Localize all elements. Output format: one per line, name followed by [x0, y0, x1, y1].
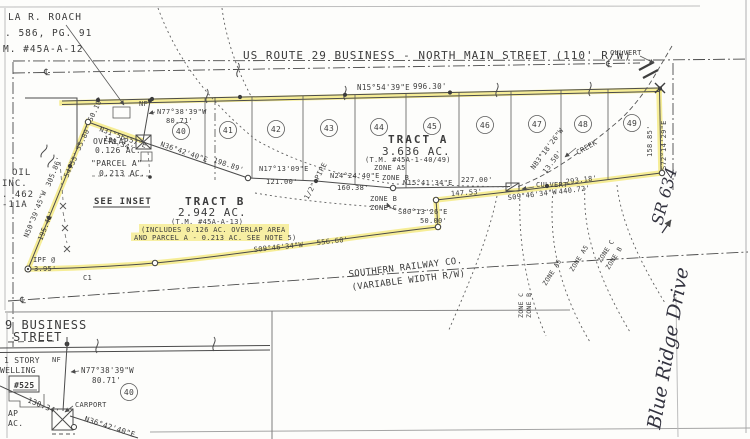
owner-tax-map: M. #45A-A-12 — [3, 44, 84, 55]
inset-story-label: 1 STORY — [4, 356, 40, 365]
ipf-distance: 3.95' — [34, 265, 57, 273]
lot-number: 42 — [271, 125, 281, 134]
parcel-a-name: "PARCEL A" — [91, 159, 142, 168]
jog-distance: 50.00' — [420, 217, 447, 225]
inset-street-line2: STREET — [13, 330, 62, 344]
front-distance: 80.71' — [166, 117, 193, 125]
owner-deed-ref: . 586, PG. 91 — [5, 28, 92, 39]
parcel-a-area: 0.213 AC. — [99, 169, 145, 178]
inset-dwelling-label: WELLING — [0, 366, 36, 375]
culvert-label-top: CULVERT — [610, 49, 642, 57]
centerline-symbol: ℄ — [605, 60, 612, 70]
rear2-bearing: N17°13'09"E — [259, 165, 309, 173]
rear2-distance: 121.00' — [266, 178, 298, 186]
inset-fragment-2: AC. — [8, 419, 23, 428]
inset-lot-number: 40 — [124, 388, 134, 397]
tract-a-tm: (T.M. #45A-1-40/49) — [365, 156, 451, 164]
road-distance: 996.30' — [413, 82, 447, 91]
street-name: US ROUTE 29 BUSINESS - NORTH MAIN STREET… — [243, 49, 632, 62]
road-bearing: N15°54'39"E — [357, 83, 410, 92]
lot-number: 49 — [627, 119, 637, 128]
east-bearing: S72°14'29"E — [660, 120, 668, 170]
nf-label: NF — [139, 100, 148, 108]
adjoiner-line2: INC. — [2, 179, 28, 189]
centerline-symbol: ℄ — [19, 296, 26, 306]
inset-carport-label: CARPORT — [75, 401, 107, 409]
lot-number: 48 — [578, 120, 588, 129]
inset-fragment-1: AP — [8, 409, 18, 418]
east-distance: 158.85' — [646, 125, 654, 157]
lot-number: 40 — [176, 127, 186, 136]
ipf-pin — [27, 268, 29, 270]
jog-bearing: S80°13'26"E — [398, 208, 448, 216]
lot-number: 45 — [427, 122, 437, 131]
centerline-symbol: ℄ — [43, 68, 50, 78]
see-inset-label: SEE INSET — [94, 197, 152, 207]
rear4-bearing: N15°41'34"E — [403, 179, 453, 187]
inset-house-number: #525 — [14, 381, 34, 390]
adjoiner-line4: -11A — [2, 200, 28, 210]
plat-drawing: 40 41 42 43 44 45 46 47 48 49 LA R. ROAC… — [0, 0, 750, 439]
scanned-survey-plat: 40 41 42 43 44 45 46 47 48 49 LA R. ROAC… — [0, 0, 750, 439]
rear4-distance: 227.00' — [461, 176, 493, 184]
zone-b-label: ZONE B — [370, 195, 397, 203]
ipf-label: IPF @ — [33, 256, 56, 264]
lot-number: 44 — [374, 123, 384, 132]
inset-front-bearing: N77°38'39"W — [81, 366, 134, 375]
tract-b-note1: (INCLUDES 0.126 AC. OVERLAP AREA — [141, 226, 286, 234]
lot-number: 47 — [532, 120, 542, 129]
curve-label: C1 — [83, 274, 92, 282]
overlap-name: OVERLAP — [93, 137, 129, 146]
zone-b-label: ZONE B — [525, 293, 533, 318]
lot-number: 41 — [223, 126, 233, 135]
overlap-area: 0.126 AC. — [95, 146, 141, 155]
tract-b-note2: AND PARCEL A - 0.213 AC. SEE NOTE 5) — [134, 234, 297, 242]
rear3-distance: 160.38' — [337, 184, 369, 192]
zone-a5-label: ZONE A5 — [374, 164, 406, 172]
owner-name: LA R. ROACH — [8, 12, 82, 23]
zone-c-label: ZONE C — [370, 204, 397, 212]
rear3-bearing: N24°24'40"E — [330, 172, 380, 180]
inset-nf-label: NF — [52, 356, 61, 364]
lot-number: 46 — [480, 121, 490, 130]
front-bearing: N77°38'39"W — [157, 108, 207, 116]
tract-b-tm: (T.M. #45A-A-13) — [171, 218, 243, 226]
adjoiner-line1: OIL — [12, 168, 31, 178]
inset-front-distance: 80.71' — [92, 376, 121, 385]
adjoiner-line3: . 462 — [2, 190, 34, 200]
zone-c-label: ZONE C — [517, 293, 525, 318]
lot-number: 43 — [324, 124, 334, 133]
